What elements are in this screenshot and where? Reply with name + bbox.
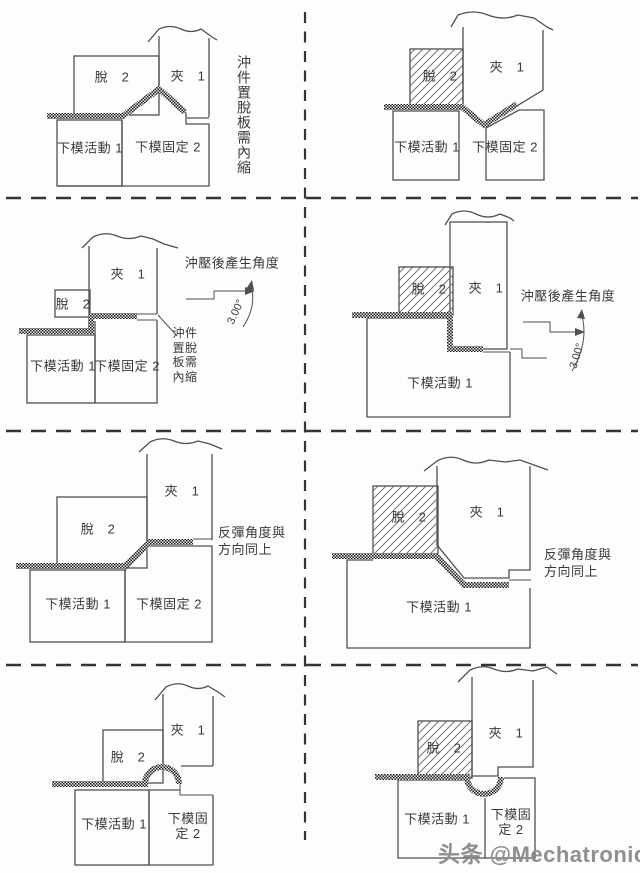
p3-note-angle: 沖壓後產生角度 (185, 256, 280, 271)
p1-label-lower-fixed: 下模固定 2 (135, 140, 201, 155)
p6-label-lower-movable: 下模活動 1 (406, 600, 472, 615)
p1-note-inward: 沖件置脫板需內縮 (237, 55, 251, 175)
p3-label-lower-movable: 下模活動 1 (30, 359, 96, 374)
p1-label-clamp: 夾 1 (171, 69, 206, 84)
p4-note-angle: 沖壓後產生角度 (521, 289, 616, 304)
panel-5 (16, 439, 222, 642)
p7-label-clamp: 夾 1 (171, 723, 206, 738)
p3-label-lower-fixed: 下模固定 2 (94, 359, 160, 374)
p3-note-inward: 沖件 置脫 板需 內縮 (172, 326, 197, 384)
p8-label-clamp: 夾 1 (489, 726, 524, 741)
watermark: 头条 @Mechatronics (438, 837, 640, 869)
p3-label-clamp: 夾 1 (111, 267, 146, 282)
p2-label-stripper: 脫 2 (423, 69, 458, 84)
diagram-canvas (0, 0, 640, 873)
p5-label-lower-movable: 下模活動 1 (45, 597, 111, 612)
diagram-page: 脫 2 夾 1 下模活動 1 下模固定 2 沖件置脫板需內縮 脫 2 夾 1 下… (0, 0, 640, 873)
panel-6 (332, 457, 548, 648)
p4-label-clamp: 夾 1 (469, 281, 504, 296)
p5-label-clamp: 夾 1 (165, 484, 200, 499)
p2-label-lower-movable: 下模活動 1 (394, 140, 460, 155)
p5-label-stripper: 脫 2 (81, 522, 116, 537)
p5-note-springback: 反彈角度與 方向同上 (218, 524, 286, 558)
panel-1 (47, 27, 217, 187)
p7-label-lower-fixed: 下模固 定 2 (168, 811, 209, 841)
p7-label-lower-movable: 下模活動 1 (81, 817, 147, 832)
p6-label-stripper: 脫 2 (392, 510, 427, 525)
p2-label-clamp: 夾 1 (490, 60, 525, 75)
p4-label-stripper: 脫 2 (412, 282, 447, 297)
p2-label-lower-fixed: 下模固定 2 (472, 140, 538, 155)
p6-label-clamp: 夾 1 (470, 505, 505, 520)
p8-label-lower-movable: 下模活動 1 (404, 812, 470, 827)
p1-label-lower-movable: 下模活動 1 (57, 141, 123, 156)
p8-label-lower-fixed: 下模固 定 2 (491, 807, 532, 837)
p4-label-lower-movable: 下模活動 1 (407, 376, 473, 391)
p8-label-stripper: 脫 2 (427, 741, 462, 756)
grid-dividers (6, 12, 638, 840)
p5-label-lower-fixed: 下模固定 2 (136, 597, 202, 612)
p1-label-stripper: 脫 2 (95, 70, 130, 85)
p3-label-stripper: 脫 2 (56, 297, 91, 312)
p6-note-springback: 反彈角度與 方向同上 (544, 546, 612, 580)
p7-label-stripper: 脫 2 (111, 750, 146, 765)
panel-2 (384, 12, 553, 180)
